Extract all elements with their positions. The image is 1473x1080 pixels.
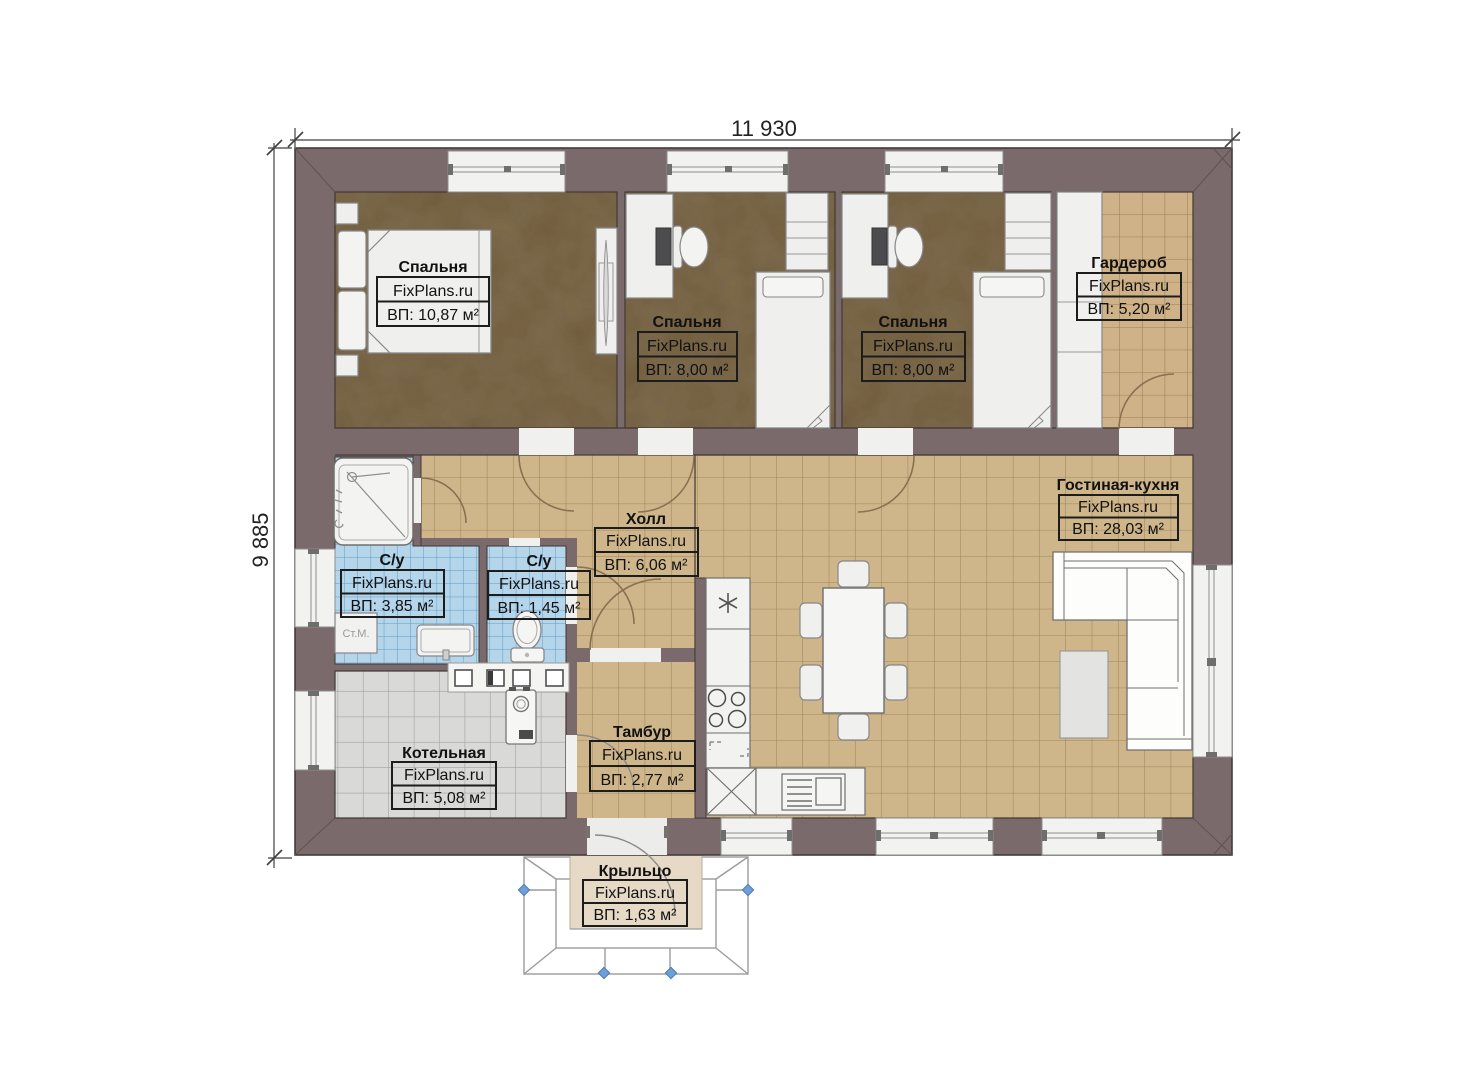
svg-text:Спальня: Спальня: [878, 314, 947, 331]
svg-text:Крыльцо: Крыльцо: [599, 863, 672, 880]
svg-text:ВП: 3,85 м²: ВП: 3,85 м²: [351, 598, 435, 615]
svg-text:ВП: 2,77 м²: ВП: 2,77 м²: [601, 772, 685, 789]
svg-text:FixPlans.ru: FixPlans.ru: [1089, 278, 1169, 295]
svg-text:FixPlans.ru: FixPlans.ru: [1078, 499, 1158, 516]
svg-text:Спальня: Спальня: [398, 259, 467, 276]
svg-text:9 885: 9 885: [248, 512, 273, 567]
svg-text:FixPlans.ru: FixPlans.ru: [352, 575, 432, 592]
svg-text:11 930: 11 930: [731, 116, 797, 141]
svg-text:С/у: С/у: [527, 553, 552, 570]
svg-text:ВП: 6,06 м²: ВП: 6,06 м²: [605, 557, 689, 574]
svg-text:FixPlans.ru: FixPlans.ru: [602, 747, 682, 764]
svg-text:FixPlans.ru: FixPlans.ru: [404, 767, 484, 784]
svg-text:FixPlans.ru: FixPlans.ru: [606, 533, 686, 550]
svg-text:FixPlans.ru: FixPlans.ru: [595, 885, 675, 902]
svg-text:Котельная: Котельная: [402, 745, 486, 762]
svg-text:ВП: 8,00 м²: ВП: 8,00 м²: [646, 362, 730, 379]
svg-text:Тамбур: Тамбур: [613, 724, 671, 741]
svg-text:FixPlans.ru: FixPlans.ru: [393, 283, 473, 300]
svg-text:ВП: 1,63 м²: ВП: 1,63 м²: [594, 907, 678, 924]
svg-text:Гардероб: Гардероб: [1091, 255, 1167, 272]
svg-text:Спальня: Спальня: [652, 314, 721, 331]
svg-text:ВП: 8,00 м²: ВП: 8,00 м²: [872, 362, 956, 379]
svg-text:ВП: 28,03 м²: ВП: 28,03 м²: [1072, 521, 1165, 538]
svg-text:FixPlans.ru: FixPlans.ru: [873, 338, 953, 355]
svg-text:Ст.М.: Ст.М.: [342, 628, 369, 640]
svg-text:ВП: 5,20 м²: ВП: 5,20 м²: [1088, 301, 1172, 318]
svg-text:FixPlans.ru: FixPlans.ru: [499, 576, 579, 593]
svg-text:FixPlans.ru: FixPlans.ru: [647, 338, 727, 355]
svg-text:ВП: 1,45 м²: ВП: 1,45 м²: [498, 600, 582, 617]
svg-text:ВП: 5,08 м²: ВП: 5,08 м²: [403, 790, 487, 807]
svg-text:С/у: С/у: [380, 552, 405, 569]
svg-text:Гостиная-кухня: Гостиная-кухня: [1057, 477, 1180, 494]
svg-text:Холл: Холл: [626, 511, 666, 528]
svg-text:ВП: 10,87 м²: ВП: 10,87 м²: [387, 307, 480, 324]
